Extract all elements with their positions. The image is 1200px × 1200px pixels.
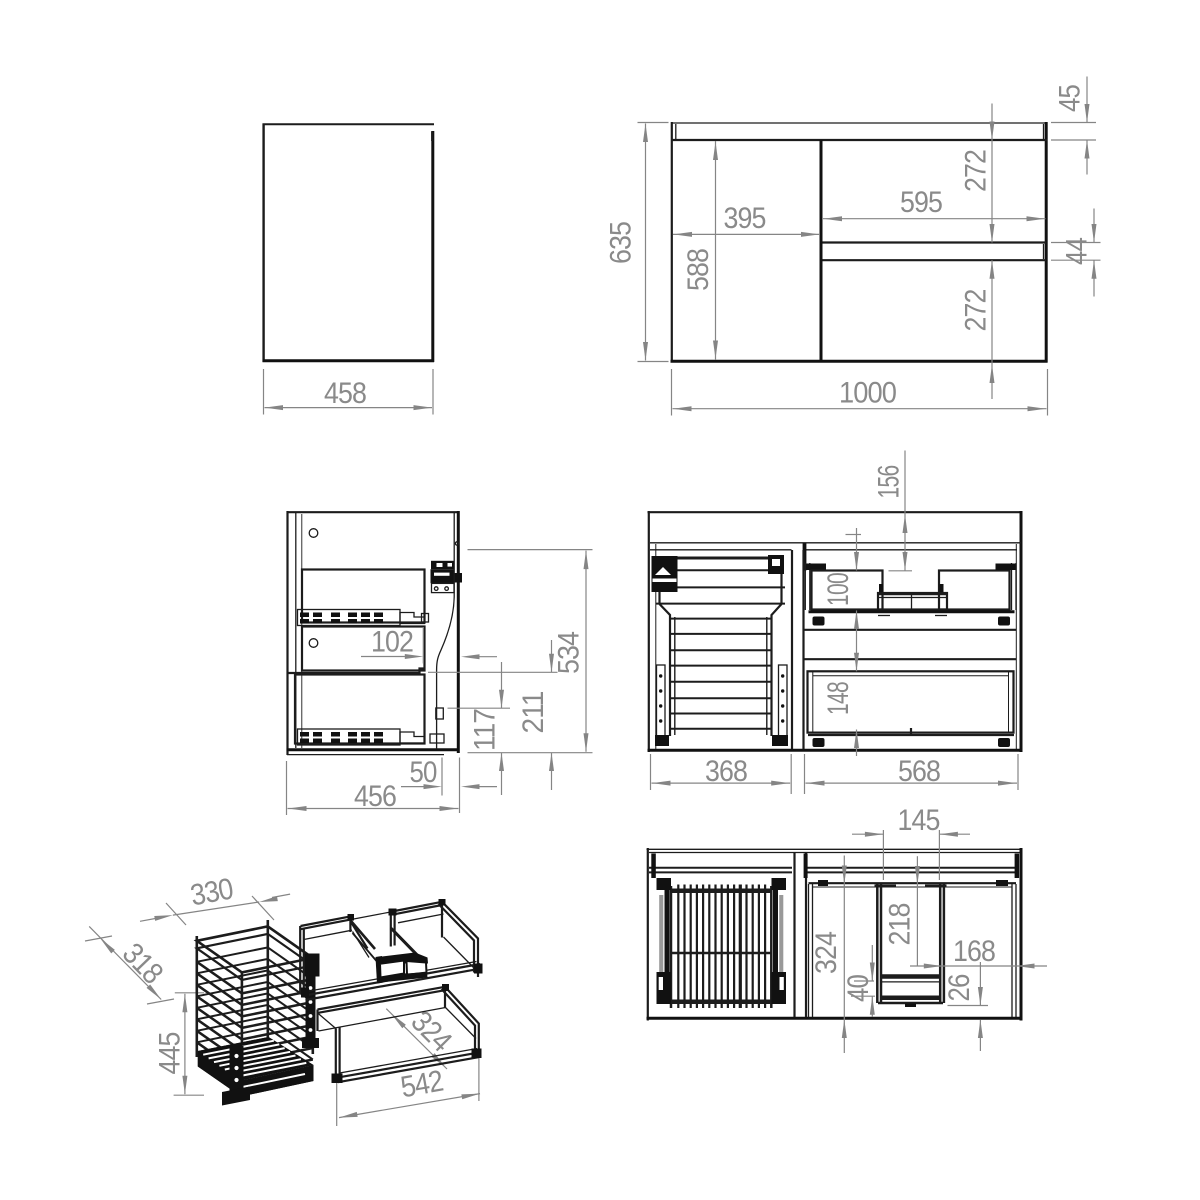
svg-text:145: 145	[898, 804, 940, 837]
svg-text:368: 368	[705, 755, 747, 788]
svg-text:458: 458	[324, 377, 366, 410]
svg-text:148: 148	[822, 682, 855, 715]
svg-text:218: 218	[883, 903, 916, 945]
svg-text:45: 45	[1053, 85, 1086, 112]
svg-text:156: 156	[872, 465, 905, 498]
svg-text:588: 588	[682, 249, 715, 291]
svg-text:568: 568	[898, 755, 940, 788]
svg-text:26: 26	[943, 974, 976, 1001]
svg-text:324: 324	[810, 932, 843, 974]
svg-text:595: 595	[900, 186, 942, 219]
svg-text:50: 50	[410, 756, 437, 789]
svg-text:211: 211	[517, 691, 550, 733]
svg-text:395: 395	[724, 202, 766, 235]
svg-text:102: 102	[371, 626, 413, 659]
svg-text:1000: 1000	[839, 377, 896, 410]
svg-text:272: 272	[959, 150, 992, 192]
svg-text:534: 534	[552, 632, 585, 674]
svg-text:456: 456	[354, 780, 396, 813]
svg-text:40: 40	[842, 975, 875, 1002]
svg-text:168: 168	[953, 935, 995, 968]
svg-text:117: 117	[468, 709, 501, 751]
svg-text:100: 100	[822, 573, 855, 606]
svg-text:635: 635	[604, 222, 637, 264]
svg-text:445: 445	[153, 1032, 186, 1074]
svg-text:272: 272	[959, 289, 992, 331]
svg-text:44: 44	[1060, 238, 1093, 265]
